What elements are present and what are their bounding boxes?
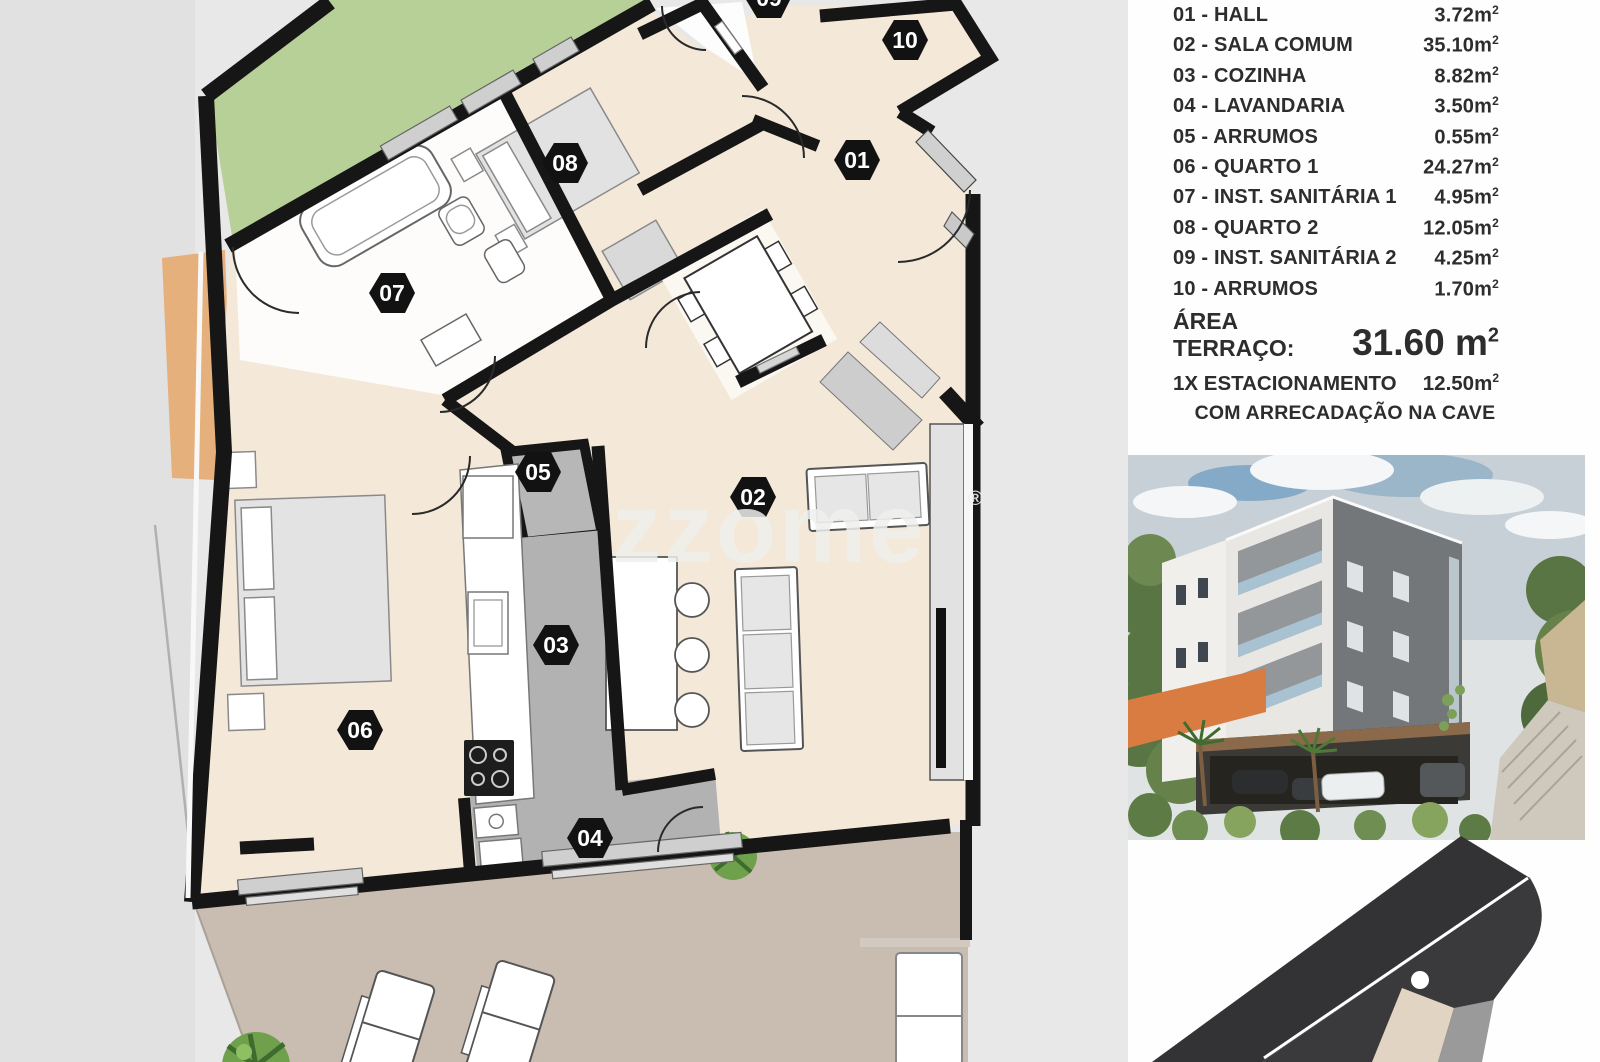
legend-label: 07 - INST. SANITÁRIA 1 bbox=[1173, 186, 1397, 209]
legend-value: 1.70m2 bbox=[1434, 278, 1499, 302]
living-room-window bbox=[930, 424, 964, 780]
legend-label: 10 - ARRUMOS bbox=[1173, 278, 1318, 301]
terrace-area-value: 31.60 m2 bbox=[1352, 322, 1499, 364]
legend-label: 09 - INST. SANITÁRIA 2 bbox=[1173, 247, 1397, 270]
legend-row: 06 - QUARTO 124.27m2 bbox=[1173, 156, 1499, 186]
watermark-registered-icon: ® bbox=[968, 488, 983, 510]
svg-text:09: 09 bbox=[756, 0, 782, 11]
legend-row: 04 - LAVANDARIA3.50m2 bbox=[1173, 95, 1499, 125]
legend-label: 01 - HALL bbox=[1173, 4, 1268, 27]
legend-label: 02 - SALA COMUM bbox=[1173, 34, 1353, 57]
svg-text:01: 01 bbox=[844, 147, 870, 173]
terrace-area-block: ÁREA TERRAÇO: 31.60 m2 bbox=[1173, 308, 1499, 362]
legend-row: 10 - ARRUMOS1.70m2 bbox=[1173, 278, 1499, 308]
legend-value: 3.72m2 bbox=[1434, 4, 1499, 28]
svg-text:07: 07 bbox=[379, 280, 405, 306]
legend-row: 09 - INST. SANITÁRIA 24.25m2 bbox=[1173, 247, 1499, 277]
legend-label: 04 - LAVANDARIA bbox=[1173, 95, 1345, 118]
legend-value: 12.05m2 bbox=[1423, 217, 1499, 241]
legend-value: 35.10m2 bbox=[1423, 34, 1499, 58]
parking-value: 12.50m2 bbox=[1423, 372, 1499, 396]
legend-row: 05 - ARRUMOS0.55m2 bbox=[1173, 126, 1499, 156]
legend-value: 4.95m2 bbox=[1434, 186, 1499, 210]
svg-text:06: 06 bbox=[347, 717, 373, 743]
storage-note: COM ARRECADAÇÃO NA CAVE bbox=[1150, 402, 1540, 425]
legend-label: 03 - COZINHA bbox=[1173, 65, 1307, 88]
room-legend: 01 - HALL3.72m2 02 - SALA COMUM35.10m2 0… bbox=[1173, 4, 1499, 308]
info-panel: 01 - HALL3.72m2 02 - SALA COMUM35.10m2 0… bbox=[1128, 0, 1600, 1062]
sofa-three-seat bbox=[735, 567, 803, 751]
legend-row: 07 - INST. SANITÁRIA 14.95m2 bbox=[1173, 186, 1499, 216]
watermark: zzome bbox=[612, 473, 927, 583]
legend-label: 08 - QUARTO 2 bbox=[1173, 217, 1319, 240]
stove bbox=[464, 740, 514, 796]
parking-row: 1X ESTACIONAMENTO 12.50m2 bbox=[1173, 372, 1499, 396]
svg-text:10: 10 bbox=[892, 27, 918, 53]
legend-label: 06 - QUARTO 1 bbox=[1173, 156, 1319, 179]
legend-value: 8.82m2 bbox=[1434, 65, 1499, 89]
legend-label: 05 - ARRUMOS bbox=[1173, 126, 1318, 149]
terrace-bench bbox=[896, 953, 962, 1062]
legend-value: 4.25m2 bbox=[1434, 247, 1499, 271]
svg-text:03: 03 bbox=[543, 632, 569, 658]
page-left-margin bbox=[0, 0, 195, 1062]
legend-value: 0.55m2 bbox=[1434, 126, 1499, 150]
svg-text:05: 05 bbox=[525, 459, 551, 485]
svg-text:04: 04 bbox=[577, 825, 603, 851]
legend-row: 02 - SALA COMUM35.10m2 bbox=[1173, 34, 1499, 64]
legend-row: 01 - HALL3.72m2 bbox=[1173, 4, 1499, 34]
legend-row: 08 - QUARTO 212.05m2 bbox=[1173, 217, 1499, 247]
floor-plan-sheet: 09 10 01 08 07 05 02 03 06 04 zzome ® bbox=[0, 0, 1600, 1062]
legend-value: 24.27m2 bbox=[1423, 156, 1499, 180]
legend-value: 3.50m2 bbox=[1434, 95, 1499, 119]
tv-unit bbox=[936, 608, 946, 768]
svg-text:08: 08 bbox=[552, 150, 578, 176]
parking-label: 1X ESTACIONAMENTO bbox=[1173, 372, 1397, 396]
legend-row: 03 - COZINHA8.82m2 bbox=[1173, 65, 1499, 95]
